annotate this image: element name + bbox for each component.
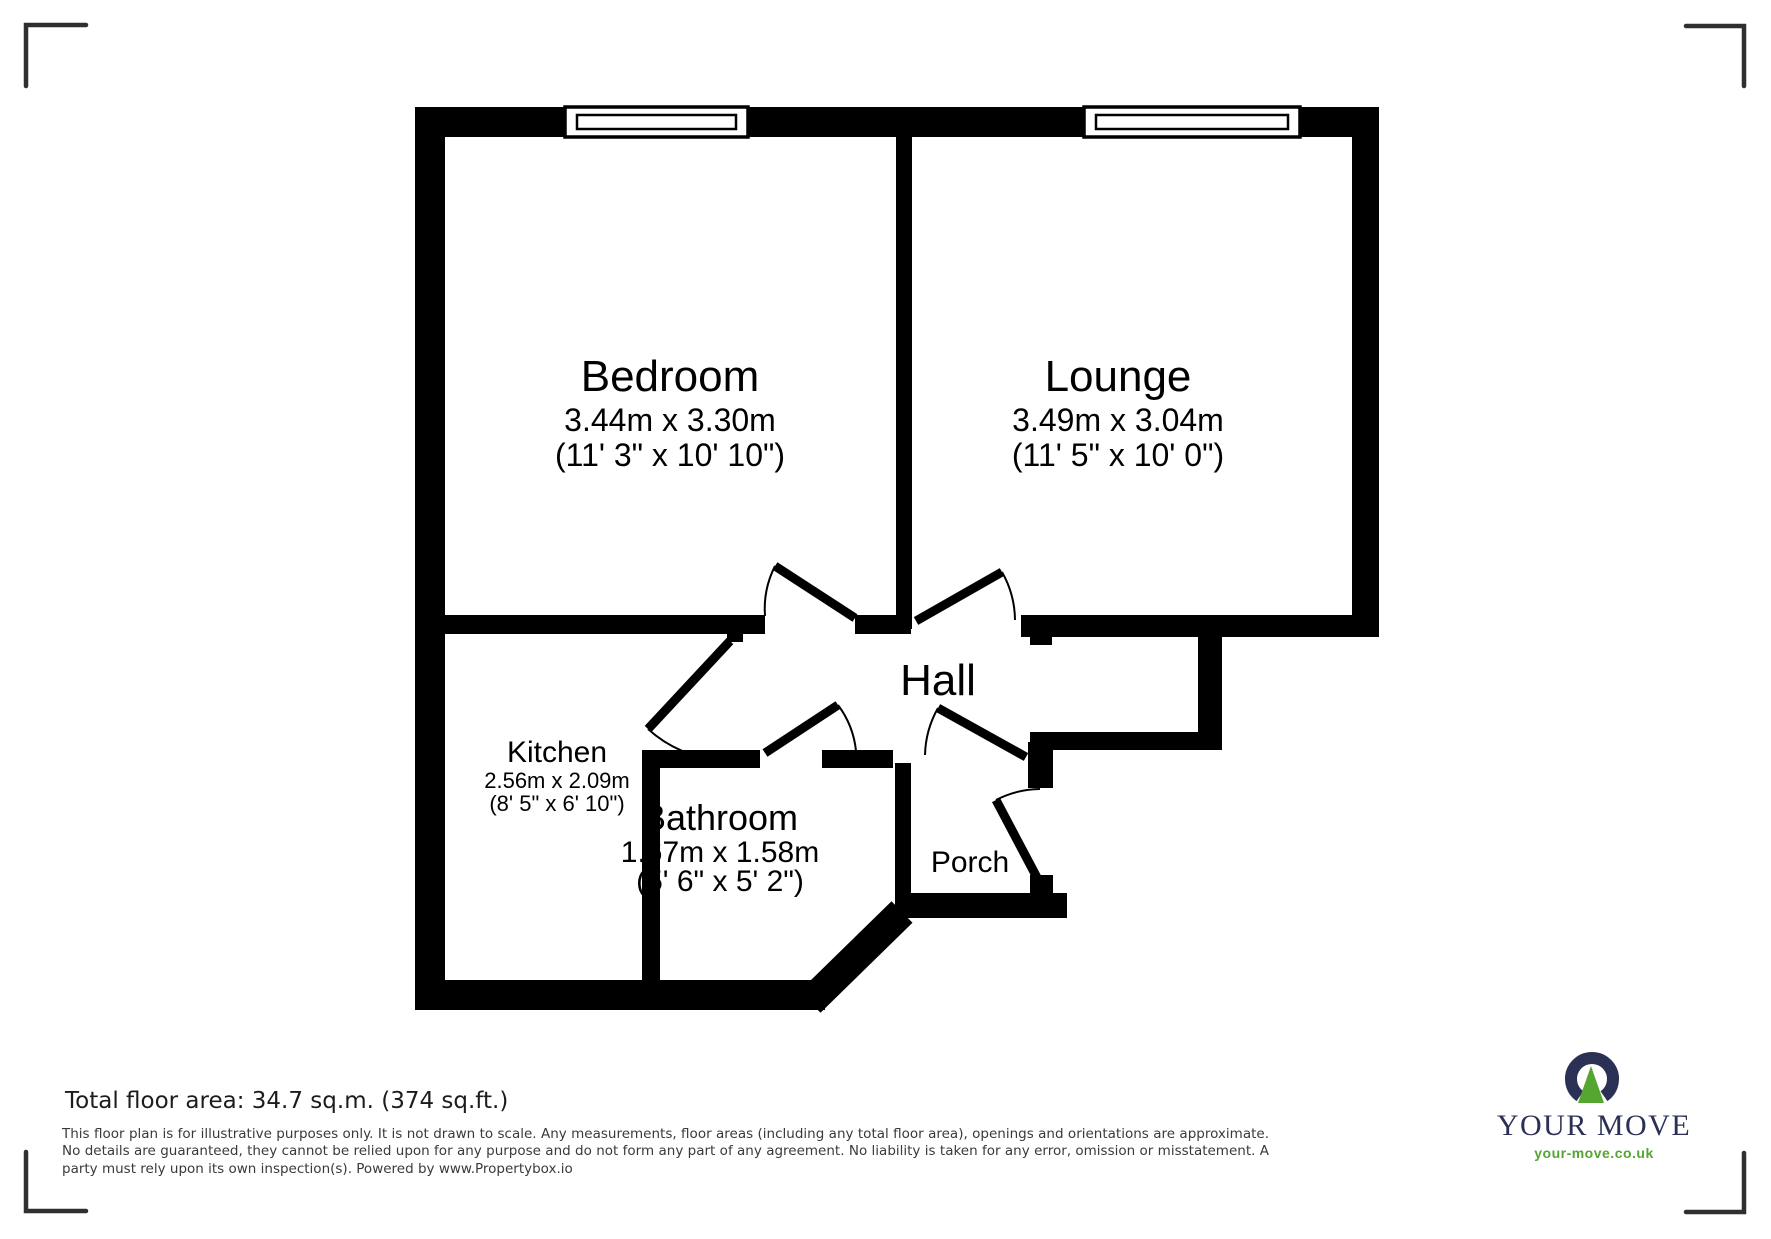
wall-porch-right-upper (1028, 742, 1053, 788)
bedroom-door-icon (765, 566, 855, 618)
wall-bedroom-bottom (443, 615, 765, 634)
bathroom-door-icon (765, 705, 856, 753)
lounge-label: Lounge (1045, 352, 1192, 401)
corner-top-right-icon (1686, 26, 1744, 86)
bedroom-window-icon (565, 107, 748, 137)
lounge-door-icon (916, 572, 1015, 621)
bedroom-dim-imperial: (11' 3" x 10' 10") (555, 437, 785, 473)
logo-url: your-move.co.uk (1534, 1145, 1654, 1161)
wall-bathroom-right (895, 763, 911, 915)
logo-triangle-icon (1578, 1066, 1604, 1103)
bathroom-dim-imperial: (5' 6" x 5' 2") (636, 865, 804, 898)
wall-lounge-bottom (1021, 615, 1379, 637)
kitchen-door-icon (648, 641, 730, 760)
wall-porch-bottom (895, 893, 1067, 918)
floorplan-page: Bedroom 3.44m x 3.30m (11' 3" x 10' 10")… (0, 0, 1771, 1239)
wall-closet-bottom (1030, 732, 1222, 750)
wall-bedroom-bottom-jamb (727, 630, 743, 642)
bedroom-label: Bedroom (581, 352, 760, 401)
your-move-logo: YOUR MOVE your-move.co.uk (1497, 1058, 1691, 1161)
logo-wordmark: YOUR MOVE (1497, 1109, 1691, 1142)
kitchen-dim-imperial: (8' 5" x 6' 10") (489, 791, 624, 816)
wall-lounge-right (1352, 107, 1379, 637)
wall-bedroom-lounge-divider (896, 137, 912, 629)
kitchen-label: Kitchen (507, 736, 607, 769)
disclaimer-text: This floor plan is for illustrative purp… (62, 1126, 1269, 1178)
lounge-window-icon (1084, 107, 1300, 137)
wall-bottom (415, 980, 825, 1010)
floorplan-drawing: Bedroom 3.44m x 3.30m (11' 3" x 10' 10")… (0, 0, 1771, 1239)
porch-label: Porch (931, 846, 1009, 879)
kitchen-dim-metric: 2.56m x 2.09m (484, 768, 630, 793)
lounge-dim-imperial: (11' 5" x 10' 0") (1012, 437, 1224, 473)
lounge-dim-metric: 3.49m x 3.04m (1012, 402, 1224, 438)
wall-lounge-bottom-jamb (1030, 633, 1052, 645)
wall-bathroom-top-right (822, 750, 893, 768)
hall-label: Hall (900, 656, 976, 705)
wall-left (415, 107, 445, 1010)
corner-bottom-right-icon (1686, 1153, 1744, 1212)
hall-porch-door-icon (925, 708, 1026, 757)
bedroom-dim-metric: 3.44m x 3.30m (564, 402, 776, 438)
wall-hall-left-piece (855, 615, 911, 634)
wall-diagonal (810, 912, 902, 1002)
bathroom-label: Bathroom (642, 797, 798, 838)
total-floor-area: Total floor area: 34.7 sq.m. (374 sq.ft.… (65, 1088, 508, 1114)
corner-top-left-icon (26, 25, 86, 86)
walls (415, 107, 1379, 1010)
